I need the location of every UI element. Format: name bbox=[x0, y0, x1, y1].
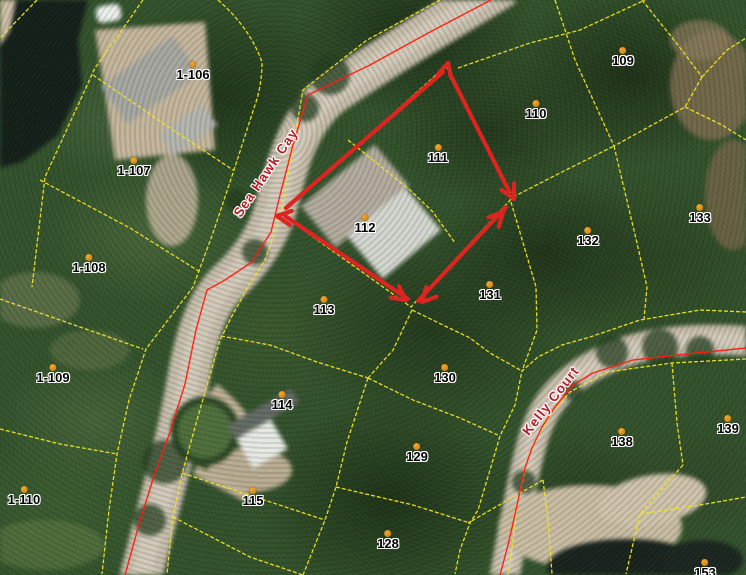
parcel-marker-139[interactable]: 139 bbox=[717, 415, 739, 435]
parcel-label: 110 bbox=[526, 107, 547, 120]
parcel-marker-110[interactable]: 110 bbox=[526, 100, 547, 120]
parcel-marker-130[interactable]: 130 bbox=[434, 364, 456, 384]
parcel-label: 138 bbox=[611, 435, 633, 448]
parcel-label: 1-107 bbox=[117, 164, 150, 177]
parcel-marker-132[interactable]: 132 bbox=[577, 227, 599, 247]
parcel-label: 112 bbox=[355, 221, 376, 234]
parcel-label: 133 bbox=[689, 211, 711, 224]
parcel-marker-128[interactable]: 128 bbox=[377, 530, 399, 550]
parcel-label: 1-110 bbox=[8, 493, 41, 506]
parcel-label: 1-109 bbox=[36, 371, 69, 384]
parcel-marker-1-107[interactable]: 1-107 bbox=[117, 157, 150, 177]
parcel-marker-1-108[interactable]: 1-108 bbox=[72, 254, 105, 274]
parcel-marker-115[interactable]: 115 bbox=[243, 487, 264, 507]
parcel-label: 139 bbox=[717, 422, 739, 435]
parcel-label: 111 bbox=[428, 151, 448, 164]
parcel-marker-133[interactable]: 133 bbox=[689, 204, 711, 224]
parcel-marker-1-109[interactable]: 1-109 bbox=[36, 364, 69, 384]
selection-arrows bbox=[277, 63, 514, 302]
parcel-label: 130 bbox=[434, 371, 456, 384]
annotation-arrows-layer bbox=[0, 0, 746, 575]
parcel-label: 113 bbox=[314, 303, 335, 316]
parcel-marker-111[interactable]: 111 bbox=[428, 144, 448, 164]
parcel-label: 129 bbox=[406, 450, 428, 463]
parcel-label: 114 bbox=[272, 398, 293, 411]
parcel-label: 132 bbox=[577, 234, 599, 247]
map-canvas[interactable]: 1-1061-1071-1081-1091-110109110111112113… bbox=[0, 0, 746, 575]
parcel-label: 153 bbox=[694, 566, 716, 575]
parcel-marker-131[interactable]: 131 bbox=[479, 281, 501, 301]
parcel-label: 1-106 bbox=[176, 68, 209, 81]
parcel-label: 1-108 bbox=[72, 261, 105, 274]
parcel-label: 115 bbox=[243, 494, 264, 507]
parcel-marker-113[interactable]: 113 bbox=[314, 296, 335, 316]
parcel-marker-112[interactable]: 112 bbox=[355, 214, 376, 234]
parcel-marker-138[interactable]: 138 bbox=[611, 428, 633, 448]
parcel-label: 131 bbox=[479, 288, 501, 301]
parcel-marker-114[interactable]: 114 bbox=[272, 391, 293, 411]
parcel-marker-109[interactable]: 109 bbox=[612, 47, 634, 67]
parcel-label: 128 bbox=[377, 537, 399, 550]
parcel-marker-1-106[interactable]: 1-106 bbox=[176, 61, 209, 81]
parcel-label: 109 bbox=[612, 54, 634, 67]
parcel-marker-1-110[interactable]: 1-110 bbox=[8, 486, 41, 506]
parcel-marker-153[interactable]: 153 bbox=[694, 559, 716, 575]
parcel-marker-129[interactable]: 129 bbox=[406, 443, 428, 463]
